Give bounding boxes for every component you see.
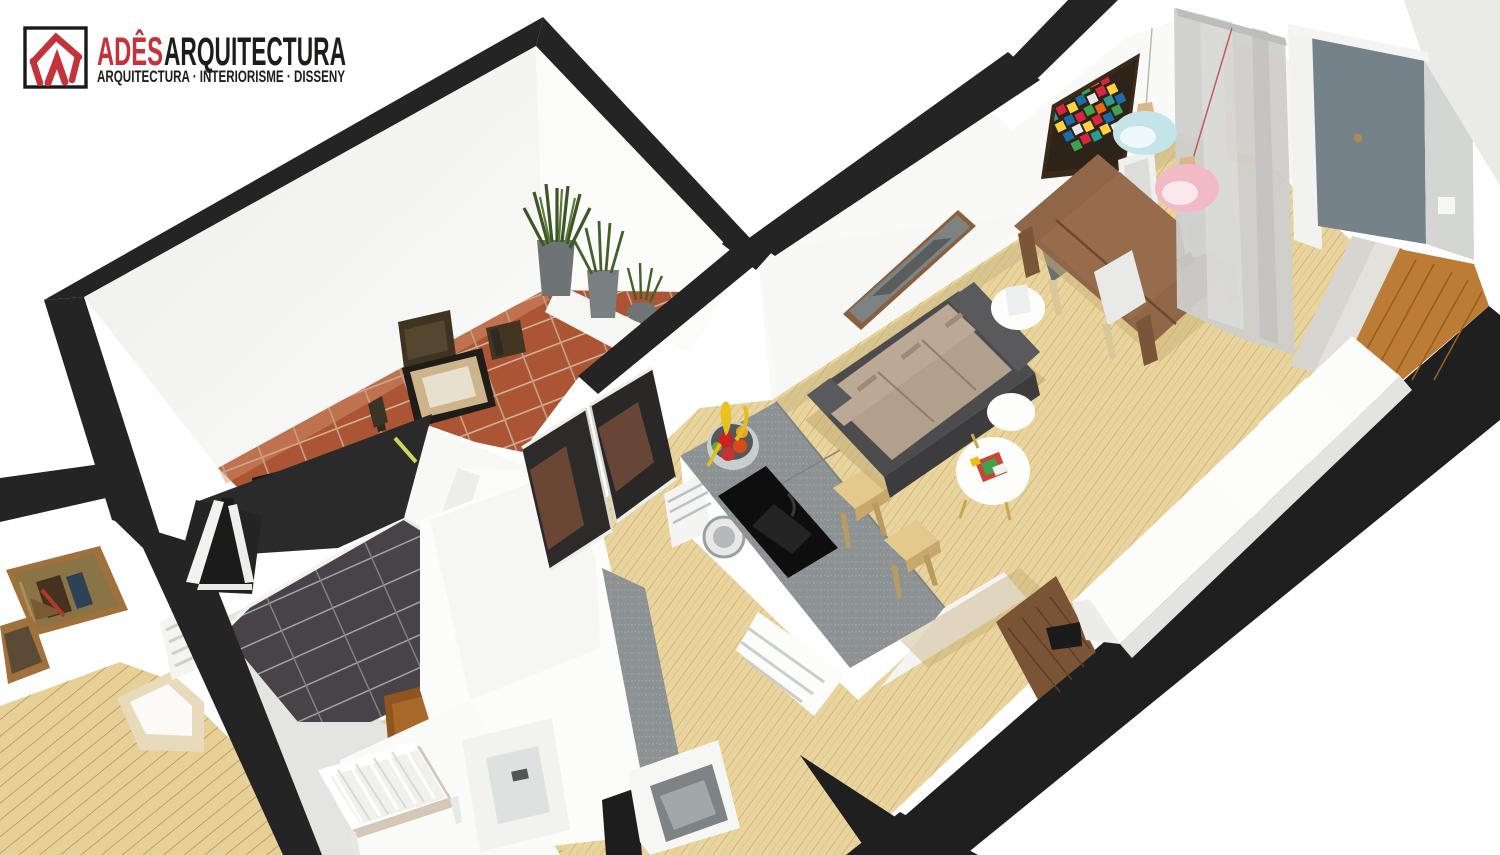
svg-text:ARQUITECTURA · INTERIORISME ·: ARQUITECTURA · INTERIORISME · DISSENY [97,68,345,86]
